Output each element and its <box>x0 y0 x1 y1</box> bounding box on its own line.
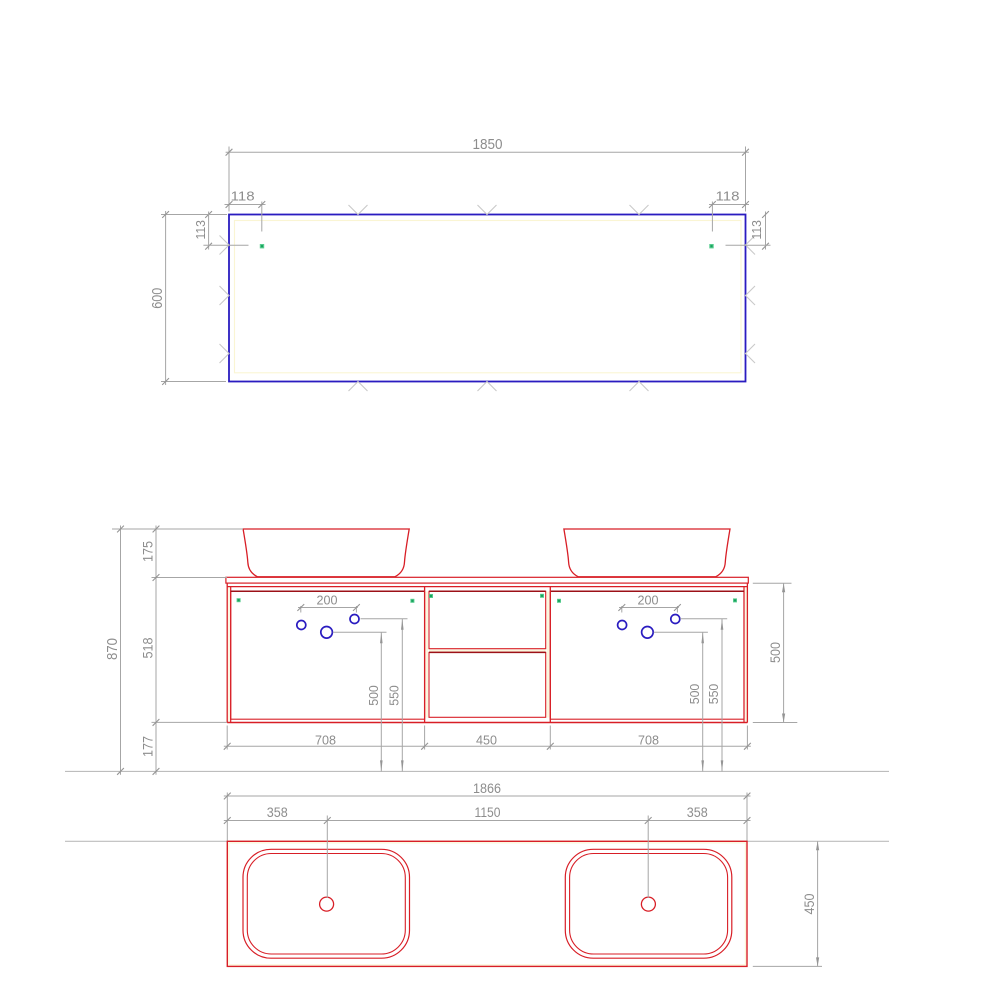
svg-text:870: 870 <box>105 638 121 660</box>
svg-text:600: 600 <box>150 288 166 309</box>
svg-text:118: 118 <box>716 189 740 204</box>
svg-text:113: 113 <box>750 220 764 240</box>
svg-text:358: 358 <box>267 805 288 820</box>
svg-text:518: 518 <box>141 638 156 659</box>
svg-text:118: 118 <box>231 189 255 204</box>
svg-text:550: 550 <box>706 684 721 705</box>
svg-text:200: 200 <box>317 593 338 608</box>
svg-text:500: 500 <box>768 642 783 663</box>
svg-text:708: 708 <box>638 733 659 748</box>
svg-text:450: 450 <box>476 733 497 748</box>
svg-text:450: 450 <box>802 894 817 915</box>
svg-text:113: 113 <box>194 220 208 240</box>
svg-text:500: 500 <box>687 684 702 705</box>
svg-text:358: 358 <box>687 805 708 820</box>
svg-text:1150: 1150 <box>475 805 501 820</box>
svg-text:500: 500 <box>366 685 381 706</box>
svg-text:1850: 1850 <box>473 137 503 153</box>
svg-text:1866: 1866 <box>473 781 501 796</box>
svg-text:177: 177 <box>141 736 156 757</box>
svg-text:175: 175 <box>141 541 156 562</box>
svg-text:708: 708 <box>315 733 336 748</box>
svg-text:200: 200 <box>638 593 659 608</box>
svg-text:550: 550 <box>387 685 402 706</box>
